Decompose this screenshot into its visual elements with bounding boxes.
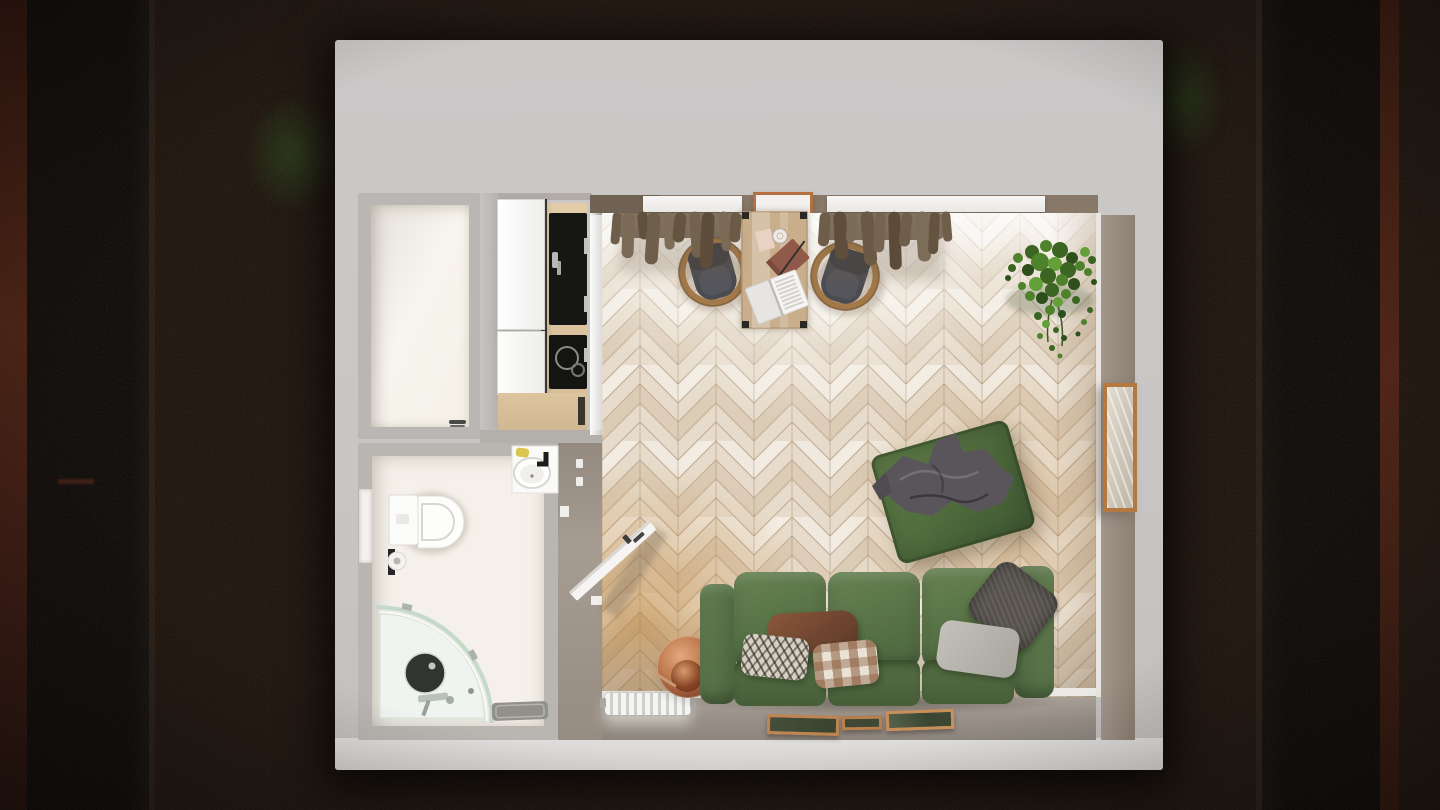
pillow-zigzag-pattern [740, 633, 810, 682]
door-jamb-bottom [591, 596, 602, 605]
kitchen-tall-cabinet-bottom [497, 331, 545, 395]
building-bottom-band [335, 738, 1163, 770]
counter-handle-1 [584, 238, 588, 254]
kitchen-divider-wall [480, 193, 498, 445]
kitchen-base-cabinet-handle [578, 397, 585, 425]
kitchen-faucet [552, 252, 558, 268]
sofa-armrest-left [700, 584, 736, 704]
radiator-valve-left [600, 698, 606, 708]
window-sill-right [827, 196, 1045, 212]
light-switch [576, 459, 583, 468]
window-sill-left [643, 196, 742, 212]
pillow-pattern [740, 633, 810, 682]
counter-handle-2 [584, 296, 588, 312]
cooktop-ring-small [571, 363, 585, 377]
door-jamb-top [560, 506, 569, 517]
picture-frame-3 [886, 709, 955, 731]
entry-room-floor [371, 205, 469, 427]
kitchen-base-cabinet [498, 393, 586, 431]
pillow-checkered [812, 639, 880, 689]
leaning-mirror [1103, 383, 1137, 512]
kitchen-tall-cabinet-top [497, 199, 545, 330]
mirror-reflection [1107, 387, 1133, 508]
entry-door-handle [449, 420, 466, 424]
pillow-plaid [812, 639, 880, 689]
corridor-floor [558, 443, 602, 740]
copper-cup [671, 660, 703, 692]
kitchen-bottom-wall [480, 430, 602, 444]
bathroom-wall-niche [359, 489, 372, 563]
picture-frame-1 [767, 714, 839, 736]
bathroom-floor [372, 456, 544, 726]
kitchen-sink [549, 213, 587, 325]
apartment-night-render [0, 0, 1440, 810]
kitchen-floor-light-strip [590, 213, 603, 435]
picture-frame-2 [842, 716, 882, 731]
counter-handle-3 [584, 348, 588, 362]
